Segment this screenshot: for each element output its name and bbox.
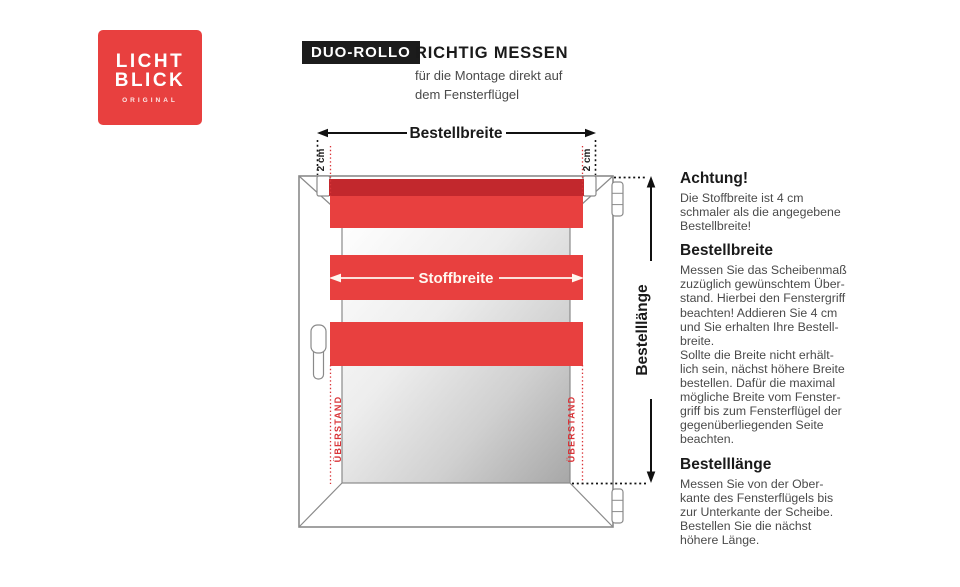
logo-wordmark-line2: BLICK xyxy=(115,71,186,90)
window-hinge-bottom-icon xyxy=(612,489,623,523)
logo-wordmark-line1: LICHT xyxy=(116,52,184,71)
product-badge: DUO-ROLLO xyxy=(302,41,420,64)
fabric-stripe-3 xyxy=(330,322,583,366)
section-bestelllaenge: Bestelllänge Messen Sie von der Ober- ka… xyxy=(680,456,925,547)
offset-left-label: 2 cm xyxy=(316,148,327,171)
roller-bracket-right xyxy=(583,176,596,196)
lichtblick-logo: LICHT BLICK ORIGINAL xyxy=(98,30,202,125)
section-achtung-body: Die Stoffbreite ist 4 cm schmaler als di… xyxy=(680,191,925,233)
section-bestelllaenge-heading: Bestelllänge xyxy=(680,456,925,473)
section-bestelllaenge-body: Messen Sie von der Ober- kante des Fenst… xyxy=(680,477,925,547)
page-subtitle: für die Montage direkt auf dem Fensterfl… xyxy=(415,66,562,104)
instructions-column: Achtung! Die Stoffbreite ist 4 cm schmal… xyxy=(680,170,925,556)
bestellbreite-label: Bestellbreite xyxy=(409,125,502,142)
section-bestellbreite: Bestellbreite Messen Sie das Scheibenmaß… xyxy=(680,242,925,446)
window-handle-icon xyxy=(311,325,326,379)
window-measuring-diagram: Stoffbreite Bestellbreite 2 cm 2 cm ÜBER… xyxy=(270,120,670,540)
roller-tube xyxy=(329,179,584,196)
window-hinge-top-icon xyxy=(612,182,623,216)
ueberstand-left-label: ÜBERSTAND xyxy=(333,396,343,463)
ueberstand-right-label: ÜBERSTAND xyxy=(567,396,577,463)
section-achtung: Achtung! Die Stoffbreite ist 4 cm schmal… xyxy=(680,170,925,233)
bestelllaenge-label: Bestelllänge xyxy=(634,284,651,376)
logo-original-tagline: ORIGINAL xyxy=(122,97,178,104)
fabric-stripe-1 xyxy=(330,196,583,228)
section-bestellbreite-body: Messen Sie das Scheibenmaß zuzüglich gew… xyxy=(680,263,925,446)
offset-right-label: 2 cm xyxy=(582,148,593,171)
page-title: RICHTIG MESSEN xyxy=(415,44,568,63)
roller-bracket-left xyxy=(317,176,330,196)
section-achtung-heading: Achtung! xyxy=(680,170,925,187)
page: LICHT BLICK ORIGINAL DUO-ROLLO RICHTIG M… xyxy=(0,0,960,587)
diagram-svg: Stoffbreite Bestellbreite 2 cm 2 cm ÜBER… xyxy=(270,120,670,540)
stoffbreite-label: Stoffbreite xyxy=(419,270,494,287)
section-bestellbreite-heading: Bestellbreite xyxy=(680,242,925,259)
